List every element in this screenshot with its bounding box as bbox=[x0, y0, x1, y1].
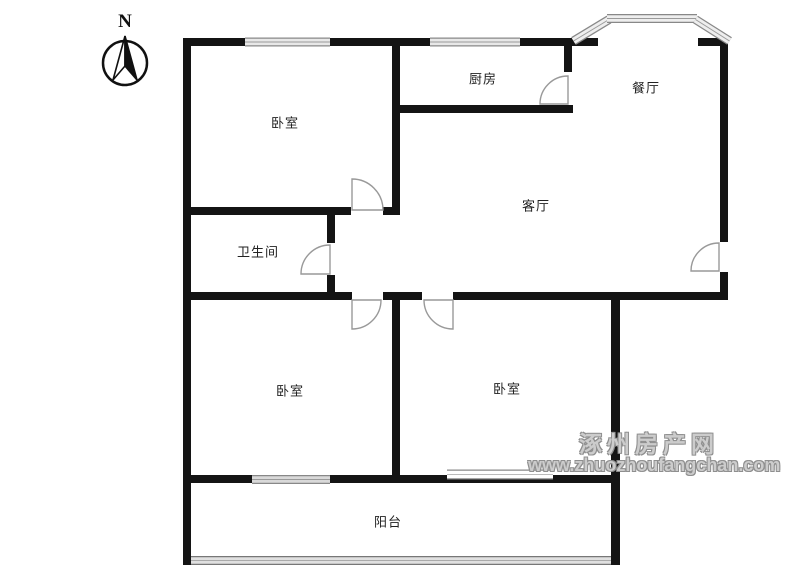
wall-segments bbox=[183, 38, 728, 565]
walls bbox=[183, 38, 728, 565]
bay-window-right-diagonal bbox=[696, 20, 730, 42]
bedroom-bottom-right-door-swing bbox=[424, 300, 453, 329]
room-label-bedroom-bottom-left: 卧室 bbox=[276, 381, 304, 400]
bedroom-bottom-left-door-swing bbox=[352, 300, 381, 329]
room-label-balcony: 阳台 bbox=[374, 512, 402, 531]
bay-window-left-diagonal bbox=[574, 20, 610, 42]
room-label-bedroom-bottom-right: 卧室 bbox=[493, 379, 521, 398]
kitchen-door-swing bbox=[540, 76, 568, 104]
floor-plan-drawing: N bbox=[0, 0, 800, 575]
room-label-dining-room: 餐厅 bbox=[632, 78, 660, 97]
bedroom-top-door-swing bbox=[352, 179, 383, 210]
north-compass-icon: N bbox=[103, 11, 147, 85]
floor-plan-page: N 卧室 厨房 餐厅 客厅 卫生间 卧室 卧室 阳台 涿州房产网 www.zhu… bbox=[0, 0, 800, 575]
entry-door-swing bbox=[691, 243, 719, 271]
compass-north-label: N bbox=[118, 11, 132, 32]
bathroom-door-swing bbox=[301, 245, 330, 274]
doors bbox=[301, 76, 719, 329]
room-label-bathroom: 卫生间 bbox=[237, 242, 279, 261]
room-label-living-room: 客厅 bbox=[522, 196, 550, 215]
windows bbox=[191, 19, 730, 561]
room-label-kitchen: 厨房 bbox=[469, 69, 497, 88]
room-label-bedroom-top-left: 卧室 bbox=[271, 113, 299, 132]
